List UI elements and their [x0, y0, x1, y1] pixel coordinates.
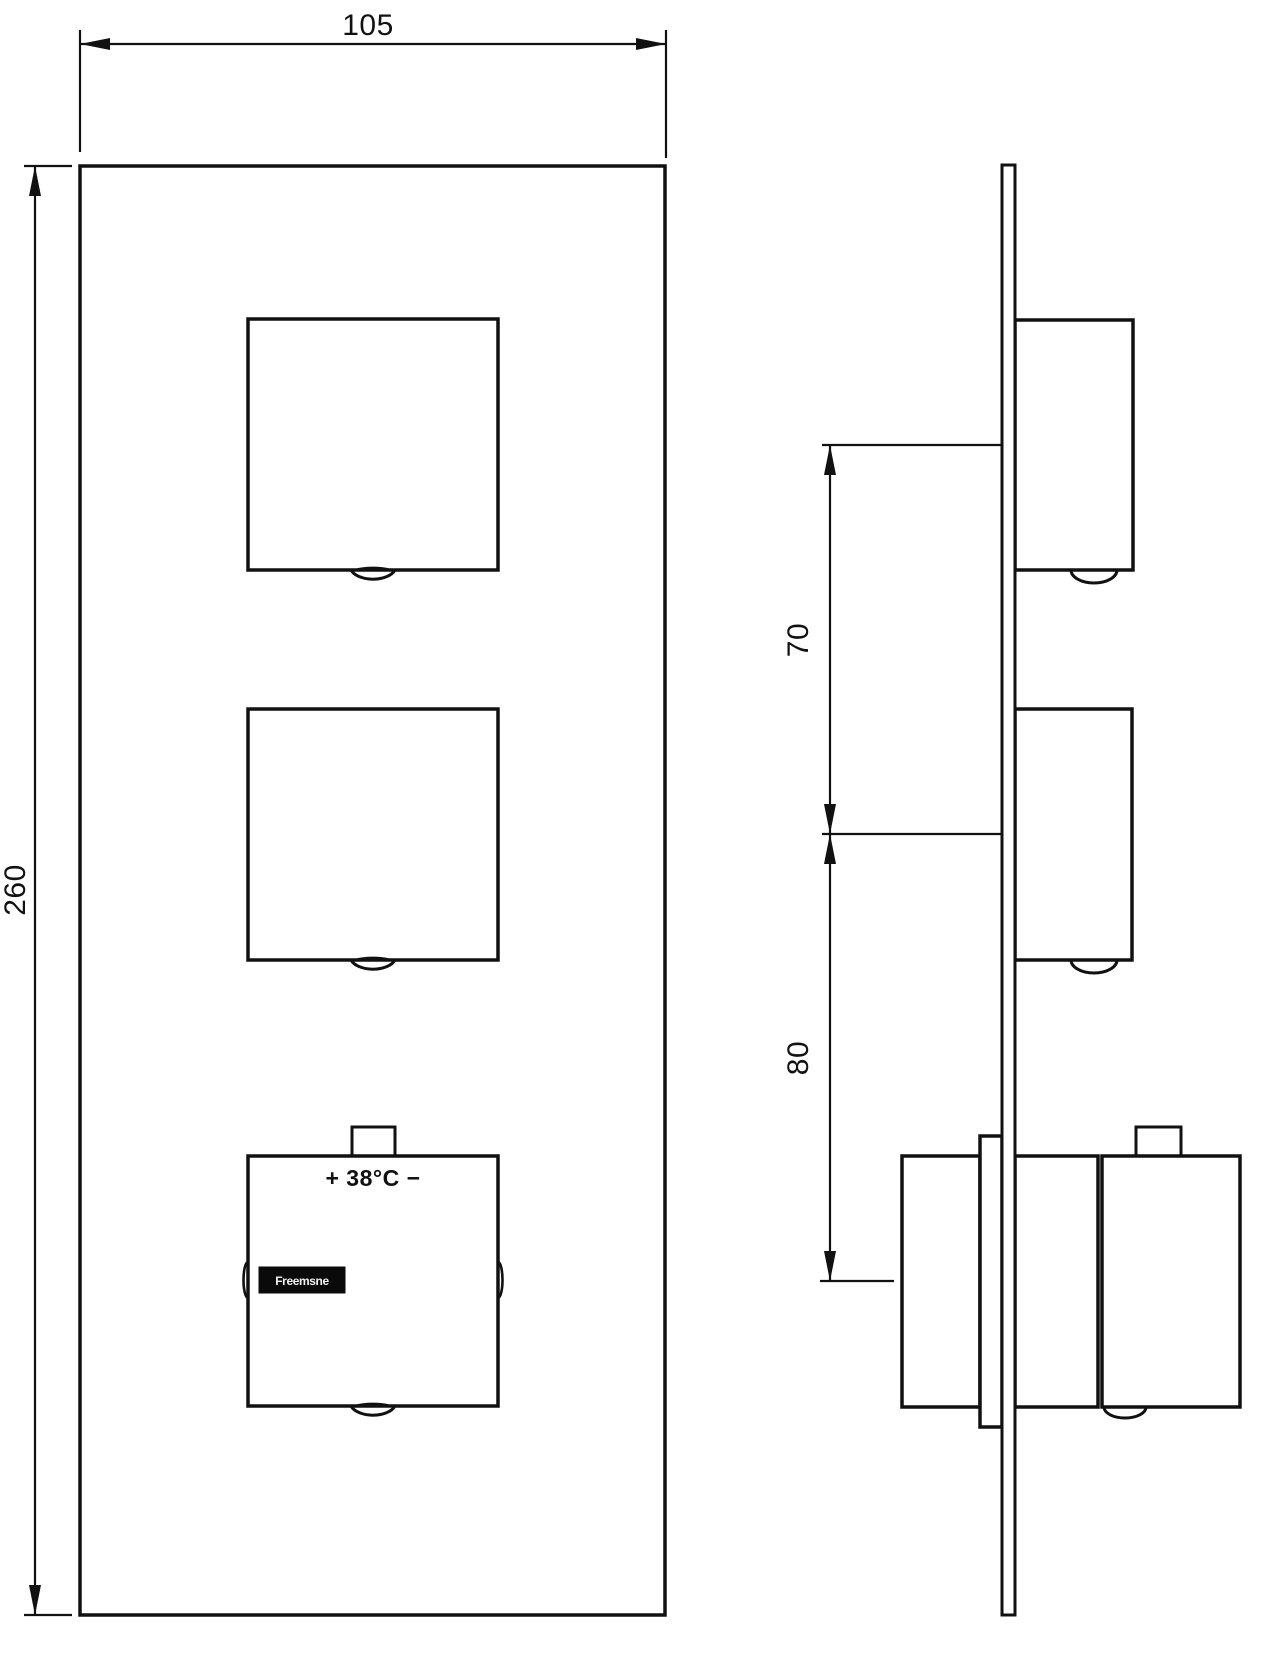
side-top-handle — [1015, 320, 1133, 570]
dimension-spacing-80: 80 — [782, 834, 894, 1281]
arrowhead-bottom — [824, 1251, 836, 1281]
side-plate-profile — [1002, 165, 1015, 1615]
side-thermostat-knob — [1102, 1156, 1240, 1407]
side-middle-handle — [1015, 709, 1132, 960]
dimension-height-260: 260 — [0, 166, 72, 1615]
dimension-spacing-70: 70 — [782, 445, 1002, 834]
front-thermostat-button-tab — [352, 1127, 395, 1157]
arrowhead-right — [636, 38, 666, 50]
dim-value-260: 260 — [0, 864, 32, 916]
front-middle-handle — [248, 709, 498, 960]
temperature-label: + 38°C − — [325, 1165, 420, 1191]
side-middle-handle-grip-dome — [1071, 960, 1117, 973]
side-mounting-flange — [980, 1136, 1002, 1427]
arrowhead-top — [29, 166, 41, 196]
dim-value-80: 80 — [782, 1041, 815, 1075]
side-valve-body-rear — [902, 1156, 980, 1407]
dim-value-70: 70 — [782, 623, 815, 657]
technical-drawing: + 38°C − Freemsne 105 260 — [0, 0, 1272, 1650]
arrowhead-bottom — [29, 1585, 41, 1615]
side-thermostat-button-tab — [1136, 1127, 1181, 1156]
arrowhead-left — [80, 38, 110, 50]
arrowhead-top — [824, 445, 836, 475]
drawing-canvas: + 38°C − Freemsne 105 260 — [0, 0, 1272, 1650]
side-view — [902, 165, 1240, 1615]
front-view: + 38°C − Freemsne — [80, 166, 665, 1615]
dimension-width-105: 105 — [80, 9, 666, 158]
front-top-handle — [248, 319, 498, 570]
dim-value-105: 105 — [342, 9, 394, 42]
logo-text: Freemsne — [275, 1274, 329, 1288]
arrowhead-bottom — [824, 804, 836, 834]
arrowhead-top — [824, 834, 836, 864]
side-thermostat-inner-ring — [1015, 1156, 1098, 1407]
side-top-handle-grip-dome — [1071, 570, 1117, 583]
